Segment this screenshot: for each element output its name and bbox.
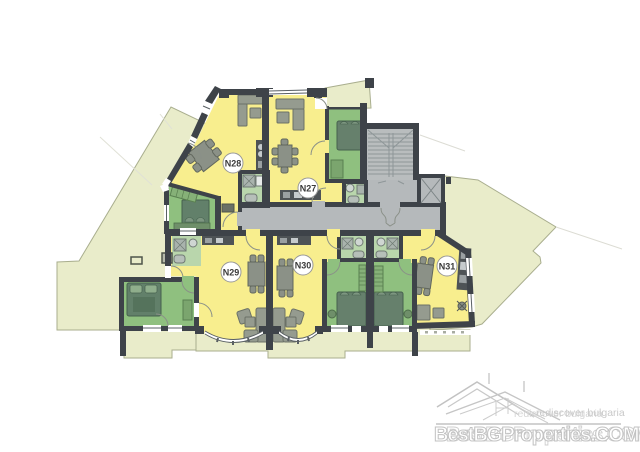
svg-text:rediscover bulgaria: rediscover bulgaria — [536, 407, 625, 419]
svg-text:N28: N28 — [225, 159, 242, 169]
svg-text:N31: N31 — [439, 262, 456, 272]
svg-text:N27: N27 — [300, 184, 317, 194]
svg-text:N29: N29 — [223, 268, 240, 278]
svg-text:BestBGProperties.COM: BestBGProperties.COM — [434, 424, 639, 446]
svg-text:N30: N30 — [295, 261, 312, 271]
